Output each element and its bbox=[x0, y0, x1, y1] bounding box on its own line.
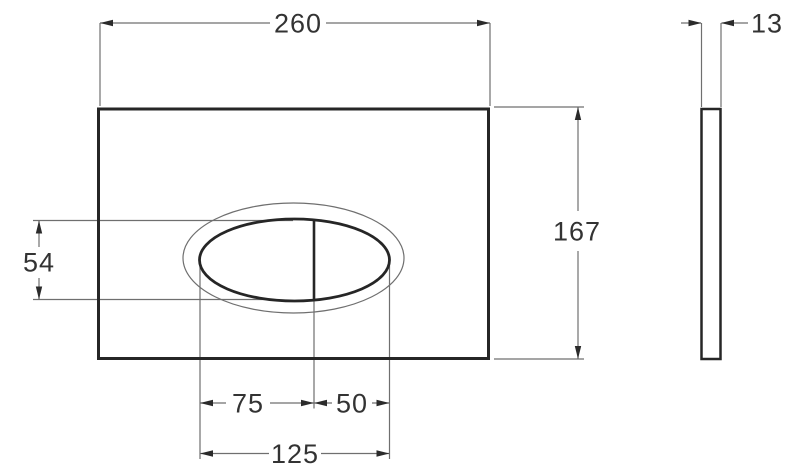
side-view-plate-outline bbox=[702, 109, 721, 359]
dim-label-button-opening-height: 54 bbox=[23, 248, 55, 278]
dimension-arrowheads bbox=[36, 20, 734, 457]
dim-label-large-button-width: 75 bbox=[232, 389, 264, 419]
dim-label-overall-height: 167 bbox=[553, 217, 601, 247]
arrowhead-167-bottom bbox=[575, 346, 581, 359]
dim-label-small-button-width: 50 bbox=[336, 389, 368, 419]
flush-plate-technical-drawing: 260 13 167 54 75 50 125 bbox=[0, 0, 800, 473]
front-view-plate-outline bbox=[99, 109, 489, 359]
arrowhead-260-right bbox=[477, 20, 490, 26]
dimension-labels: 260 13 167 54 75 50 125 bbox=[23, 9, 783, 470]
part-outlines bbox=[99, 109, 721, 359]
arrowhead-167-top bbox=[575, 107, 581, 120]
thin-lines bbox=[33, 23, 748, 459]
arrowhead-54-top bbox=[36, 221, 42, 234]
arrowhead-54-bottom bbox=[36, 287, 42, 300]
dim-label-button-opening-width: 125 bbox=[271, 439, 319, 469]
arrowhead-125-left bbox=[200, 450, 213, 456]
arrowhead-50-right bbox=[377, 400, 390, 406]
arrowhead-260-left bbox=[100, 20, 113, 26]
arrowhead-13-right bbox=[721, 20, 734, 26]
dim-label-thickness: 13 bbox=[751, 9, 783, 39]
arrowhead-75-left bbox=[200, 400, 213, 406]
arrowhead-13-left bbox=[689, 20, 702, 26]
arrowhead-125-right bbox=[377, 450, 390, 456]
technical-drawing-canvas: 260 13 167 54 75 50 125 bbox=[0, 0, 800, 473]
button-oval-outline bbox=[200, 219, 390, 301]
arrowhead-75-right bbox=[301, 400, 314, 406]
dim-label-overall-width: 260 bbox=[274, 9, 322, 39]
arrowhead-50-left bbox=[314, 400, 327, 406]
